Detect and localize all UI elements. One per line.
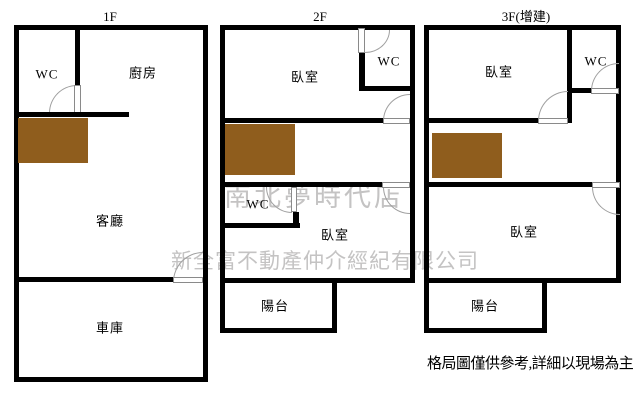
disclaimer-note: 格局圖僅供參考,詳細以現場為主 [427,356,633,373]
floor-2f-title: 2F [313,10,327,23]
room-label-balcony: 陽台 [471,300,499,313]
floor-3f-title: 3F(增建) [502,10,550,23]
wall [14,277,173,282]
wall [75,25,80,85]
room-label-bedroom: 臥室 [510,226,538,239]
door-leaf [358,28,365,53]
door-leaf [591,88,619,94]
room-label-bedroom: 臥室 [291,71,319,84]
floor-1f-title: 1F [103,10,117,23]
wall [14,112,129,117]
room-label-bedroom: 臥室 [321,229,349,242]
staircase-block [432,133,502,178]
door-leaf [291,187,297,212]
wall [220,223,300,228]
room-label-wc: WC [378,55,401,68]
room-label-living-room: 客廳 [96,215,124,228]
wall [220,118,383,123]
room-label-balcony: 陽台 [261,300,289,313]
wall [424,182,592,187]
door-leaf [173,277,203,283]
staircase-block [18,118,88,163]
room-label-wc: WC [585,55,608,68]
door-leaf [592,182,620,188]
staircase-block [225,124,295,175]
door-leaf [74,85,81,113]
wall [424,118,538,123]
door-leaf [383,118,410,124]
wall [293,212,299,228]
wall [567,88,591,93]
door-leaf [538,118,568,124]
room-label-bedroom: 臥室 [485,66,513,79]
room-label-wc: WC [247,198,270,211]
room-label-kitchen: 廚房 [129,67,157,80]
room-label-wc: WC [36,68,59,81]
wall [359,86,415,91]
door-leaf [382,182,410,188]
floor-plan-image: 南北夢時代店 新全富不動產仲介經紀有限公司 1F WC 廚房 客廳 車庫 2F [0,0,640,401]
room-label-garage: 車庫 [96,322,124,335]
wall [220,182,382,187]
